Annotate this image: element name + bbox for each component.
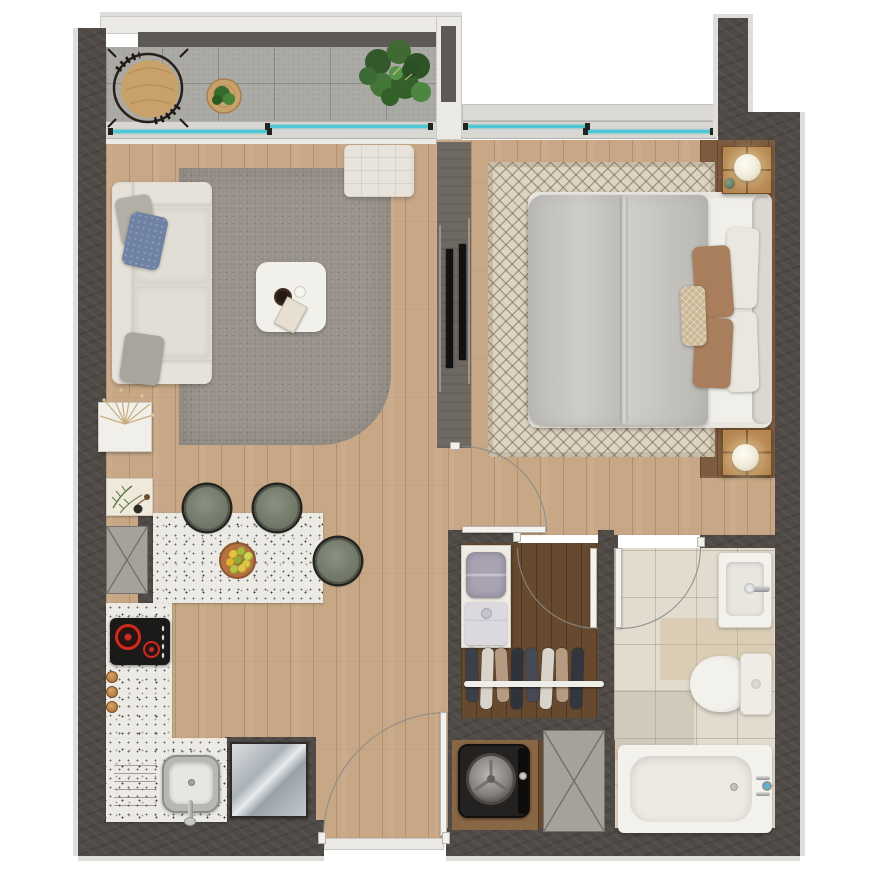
storage-bag [466, 552, 506, 598]
bathroom-door-leaf [615, 548, 622, 628]
tv-bedroom-side [459, 244, 466, 360]
floor-plan-canvas [0, 0, 880, 880]
sphere-lamp [732, 444, 759, 471]
sink-faucet-handle [184, 817, 196, 826]
window-frame-cap [108, 128, 113, 135]
balcony-slider-glass-pane [112, 130, 271, 133]
ottoman [344, 145, 414, 197]
spice-jar [106, 686, 118, 698]
toilet-flush-button [751, 679, 761, 689]
sphere-lamp [734, 154, 761, 181]
spice-jar [106, 701, 118, 713]
balcony-floor [106, 47, 436, 122]
cooktop-burner [143, 641, 160, 658]
utility-cabinet [543, 730, 605, 832]
fruit-plate [219, 542, 256, 579]
bar-stool [184, 485, 230, 531]
bedroom-door-leaf [462, 526, 546, 533]
entrance-door-leaf [440, 712, 447, 836]
media-wall-rail [439, 225, 441, 392]
hanging-garment [510, 648, 523, 709]
bar-stool [315, 538, 361, 584]
bathtub-faucet [756, 776, 770, 780]
sink-drain [188, 779, 195, 786]
hanging-garment [495, 648, 510, 703]
bathtub-faucet-valve [762, 781, 772, 791]
media-wall-rail [468, 218, 470, 384]
refrigerator [230, 742, 308, 818]
dried-plant-planter [98, 402, 152, 452]
fruit [238, 564, 247, 573]
cooktop-controls [161, 624, 165, 660]
window-frame-cap [463, 123, 468, 130]
hanging-garment [570, 648, 584, 709]
spice-jar [106, 671, 118, 683]
exterior-wall-right [775, 112, 800, 856]
entrance-threshold [324, 838, 444, 850]
hanging-garment [556, 648, 569, 702]
closet-wall-left [448, 530, 461, 722]
lumbar-pillow [680, 286, 707, 347]
door-jamb [450, 442, 460, 450]
window-frame-cap [583, 128, 588, 135]
bedroom-window-sill [462, 104, 718, 121]
door-jamb [318, 832, 326, 844]
door-jamb [697, 537, 705, 547]
gray-throw-pillow [119, 331, 166, 386]
washer-knob [519, 772, 527, 780]
washer-control-panel [518, 748, 528, 814]
tv-living-side [446, 249, 453, 368]
balcony-slider-glass-pane [269, 125, 432, 128]
window-frame-cap [710, 128, 715, 135]
hanging-garment [539, 648, 554, 710]
decor-vase [724, 178, 735, 189]
exterior-wall-top-right-cap [718, 112, 800, 140]
clothes-rail [464, 681, 604, 687]
bedroom-window-glass-pane [466, 125, 589, 128]
cooktop-burner [115, 624, 141, 650]
drainboard [114, 762, 156, 806]
coffee-cup [294, 286, 306, 298]
washer-drum [466, 753, 516, 805]
window-frame-cap [265, 123, 270, 130]
bathtub-drain [730, 783, 738, 791]
wall-art-fern-board [106, 478, 153, 516]
door-jamb [442, 832, 450, 844]
balcony-parapet-right-inset [441, 26, 456, 102]
hanging-garment [480, 648, 494, 709]
hanging-garment [466, 648, 479, 702]
bathtub-faucet [756, 792, 770, 796]
closet-door-leaf [590, 548, 597, 628]
window-frame-cap [428, 123, 433, 130]
exterior-wall-bottom-left [78, 820, 324, 856]
balcony-parapet-top-inset [138, 32, 438, 47]
balcony-slider-sill [106, 139, 436, 144]
door-jamb [513, 532, 521, 542]
kitchen-utility-box [106, 526, 148, 594]
hanging-garment [525, 648, 539, 702]
duvet-fold [620, 196, 628, 424]
basin-faucet-base [744, 583, 755, 594]
bedroom-window-glass-pane [587, 130, 713, 133]
bathroom-wall-top-right [700, 535, 775, 548]
bar-stool [254, 485, 300, 531]
shirt-collar [481, 608, 492, 619]
